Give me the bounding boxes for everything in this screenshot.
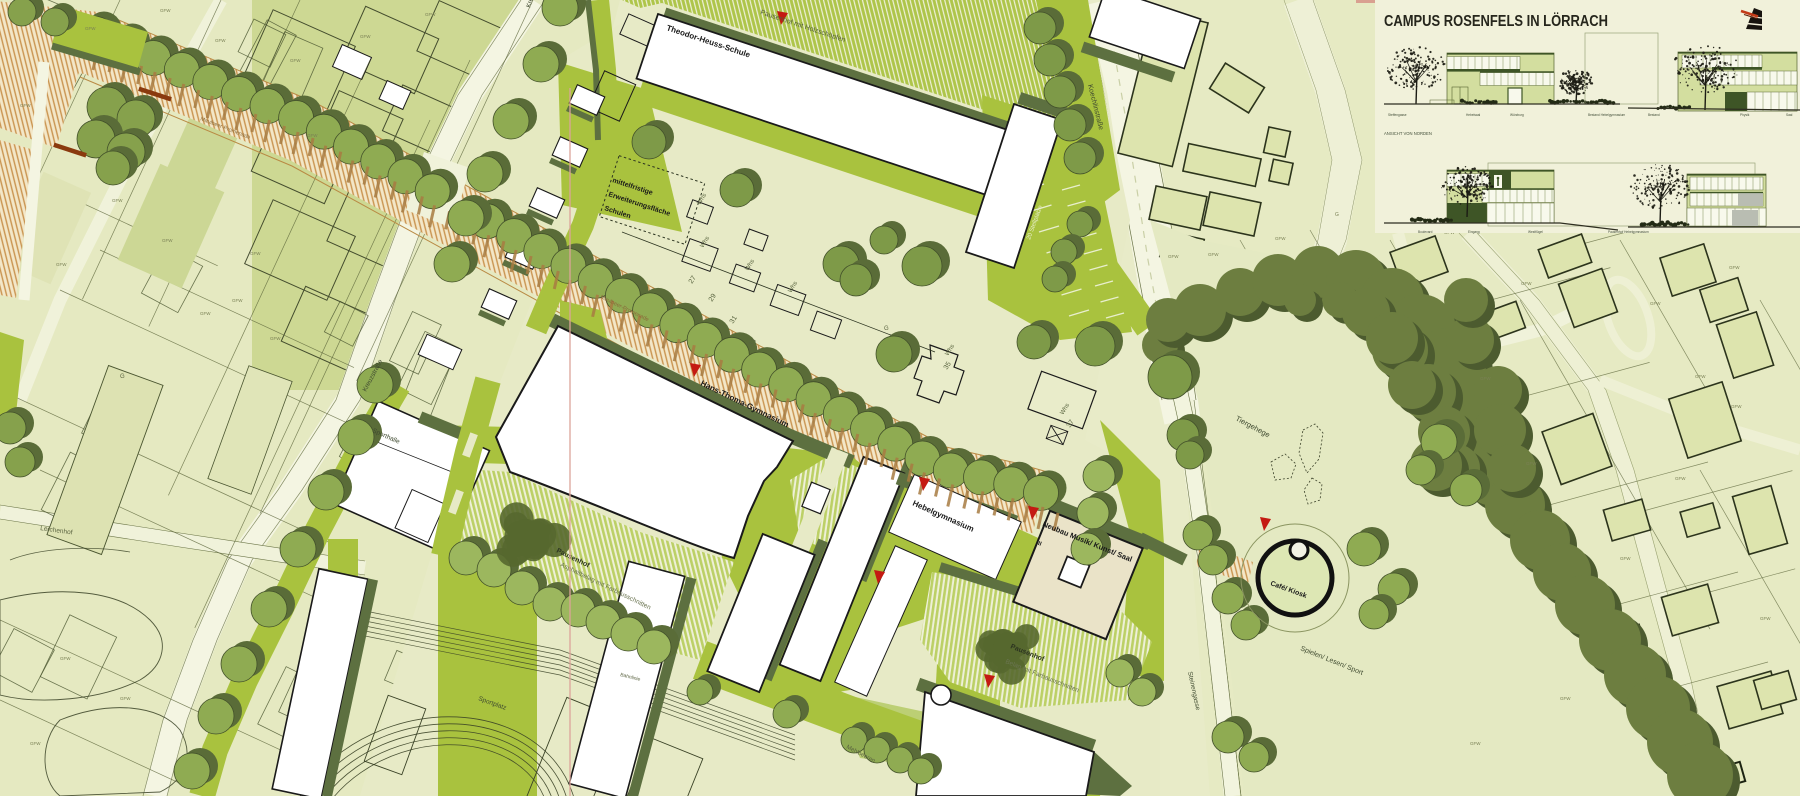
svg-text:GFW: GFW [60,656,71,661]
svg-text:GFW: GFW [215,38,226,43]
svg-text:GFW: GFW [1275,236,1286,241]
svg-text:GFW: GFW [1521,281,1532,286]
svg-text:G: G [120,374,125,380]
svg-text:G: G [1335,212,1339,218]
svg-text:Eingang: Eingang [1468,230,1480,234]
svg-text:GFW: GFW [1695,374,1706,379]
svg-text:GFW: GFW [160,8,171,13]
svg-text:GFW: GFW [1760,616,1771,621]
svg-text:GFW: GFW [1168,254,1179,259]
svg-text:ANSICHT VON NORDEN: ANSICHT VON NORDEN [1384,131,1432,136]
svg-text:Physik: Physik [1740,113,1750,117]
svg-text:GFW: GFW [1526,461,1537,466]
svg-text:GFW: GFW [270,336,281,341]
svg-text:GFW: GFW [56,262,67,267]
svg-text:GFW: GFW [290,58,301,63]
svg-text:GFW: GFW [425,12,436,17]
svg-text:GFW: GFW [20,103,31,108]
svg-text:GFW: GFW [1480,376,1491,381]
svg-text:GFW: GFW [360,34,371,39]
svg-text:GFW: GFW [1470,741,1481,746]
svg-text:Hebelsaal: Hebelsaal [1466,113,1480,117]
svg-text:Boulevard: Boulevard [1418,230,1433,234]
svg-text:GFW: GFW [1729,265,1740,270]
svg-text:GFW: GFW [232,298,243,303]
svg-text:GFW: GFW [1650,301,1661,306]
svg-text:GFW: GFW [250,251,261,256]
svg-text:GFW: GFW [200,311,211,316]
svg-text:Bestand: Bestand [1648,113,1660,117]
svg-text:GFW: GFW [1208,252,1219,257]
svg-text:GFW: GFW [1560,696,1571,701]
svg-text:Westflügel: Westflügel [1528,230,1543,234]
svg-text:Würzburg: Würzburg [1510,113,1524,117]
svg-text:GFW: GFW [1620,556,1631,561]
svg-text:Saal: Saal [1786,113,1793,117]
svg-text:GFW: GFW [120,696,131,701]
svg-text:CAMPUS ROSENFELS IN LÖRRACH: CAMPUS ROSENFELS IN LÖRRACH [1384,13,1608,30]
svg-text:Bestand Hebelgymnasium: Bestand Hebelgymnasium [1588,113,1626,117]
svg-text:GFW: GFW [1675,476,1686,481]
svg-text:GFW: GFW [85,26,96,31]
svg-text:G: G [884,326,889,332]
svg-text:GFW: GFW [30,741,41,746]
svg-text:GFW: GFW [1731,404,1742,409]
svg-text:Steffengasse: Steffengasse [1388,113,1407,117]
svg-text:GFW: GFW [112,198,123,203]
svg-text:GFW: GFW [307,133,318,138]
svg-text:GFW: GFW [162,238,173,243]
svg-text:Pausenhof Hebelgymnasium: Pausenhof Hebelgymnasium [1608,230,1649,234]
